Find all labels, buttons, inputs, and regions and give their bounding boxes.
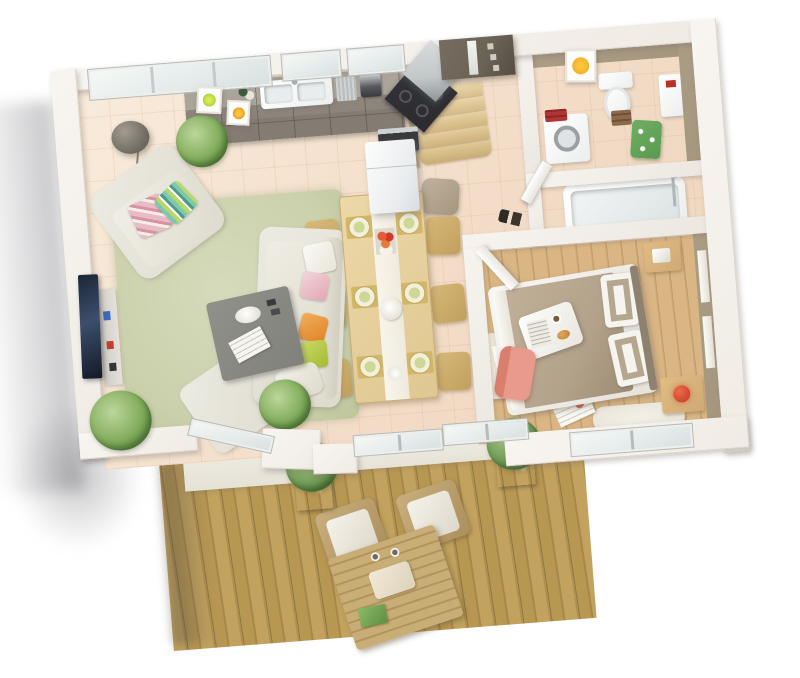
kiwi-wall-art xyxy=(196,86,222,114)
door-hardware xyxy=(490,54,496,60)
media-item-red xyxy=(106,341,114,350)
burner xyxy=(396,87,414,105)
window-frame-bar xyxy=(212,62,217,88)
orange-dot-wall-art xyxy=(565,49,596,82)
floor-plan xyxy=(36,20,738,630)
nightstand-head xyxy=(643,240,681,273)
door-glass-strip xyxy=(467,40,479,75)
bedroom-window-mullion xyxy=(630,430,634,449)
sliding-door-mullion xyxy=(398,435,402,451)
kiwi-art-fruit xyxy=(202,93,216,107)
dining-chair xyxy=(429,283,467,325)
fridge-door-seam xyxy=(367,165,417,170)
floor-plan-scene xyxy=(0,0,800,630)
sink-drainboard xyxy=(335,76,357,101)
flower-vase xyxy=(374,227,396,254)
washer-door xyxy=(553,125,581,153)
terrace-book xyxy=(358,604,388,628)
nightstand-deco xyxy=(652,248,671,263)
fridge xyxy=(365,139,420,215)
screenshot-canvas: { "scene": { "title": "3D isometric floo… xyxy=(0,0,800,600)
table-magazine xyxy=(228,326,271,363)
burner xyxy=(413,102,431,120)
dining-chair xyxy=(426,216,461,255)
orange-art-fruit xyxy=(232,107,245,120)
brown-towel-stack xyxy=(611,110,632,127)
hall-pouf xyxy=(420,178,460,216)
media-item-blue xyxy=(103,311,111,321)
table-remote xyxy=(266,299,276,307)
door-hardware xyxy=(493,65,499,71)
dining-table xyxy=(339,190,439,404)
table-dish xyxy=(234,304,263,325)
sliding-door-mullion xyxy=(485,424,489,440)
media-item-dark xyxy=(109,363,117,372)
terrace-tray xyxy=(368,560,417,600)
orange-wall-art xyxy=(226,100,250,126)
tray-cup xyxy=(550,312,563,325)
front-door xyxy=(439,35,516,81)
red-towel-stack xyxy=(545,109,568,123)
window-kitchen-2 xyxy=(347,45,405,75)
nightstand-foot xyxy=(660,375,705,414)
tray-croissant xyxy=(556,328,571,341)
orange-dot-art-circle xyxy=(572,57,589,74)
dining-chair xyxy=(436,351,472,390)
sink-basin-right xyxy=(297,81,326,101)
window-kitchen-1 xyxy=(281,50,341,80)
terrace-cup xyxy=(389,547,400,558)
green-towel-pile xyxy=(630,120,662,160)
tray-newspaper xyxy=(526,318,552,348)
window-frame-bar xyxy=(150,67,155,93)
bay-return-wall xyxy=(313,443,358,474)
vanity-red-item xyxy=(666,80,677,88)
sofa-pillow-pink xyxy=(299,270,330,301)
door-hardware xyxy=(487,43,493,49)
terrace-cup xyxy=(370,551,381,562)
sink-basin-left xyxy=(264,84,293,104)
table-remote-2 xyxy=(270,308,280,316)
coffee-machine xyxy=(359,73,382,98)
red-table-lamp xyxy=(673,385,691,403)
